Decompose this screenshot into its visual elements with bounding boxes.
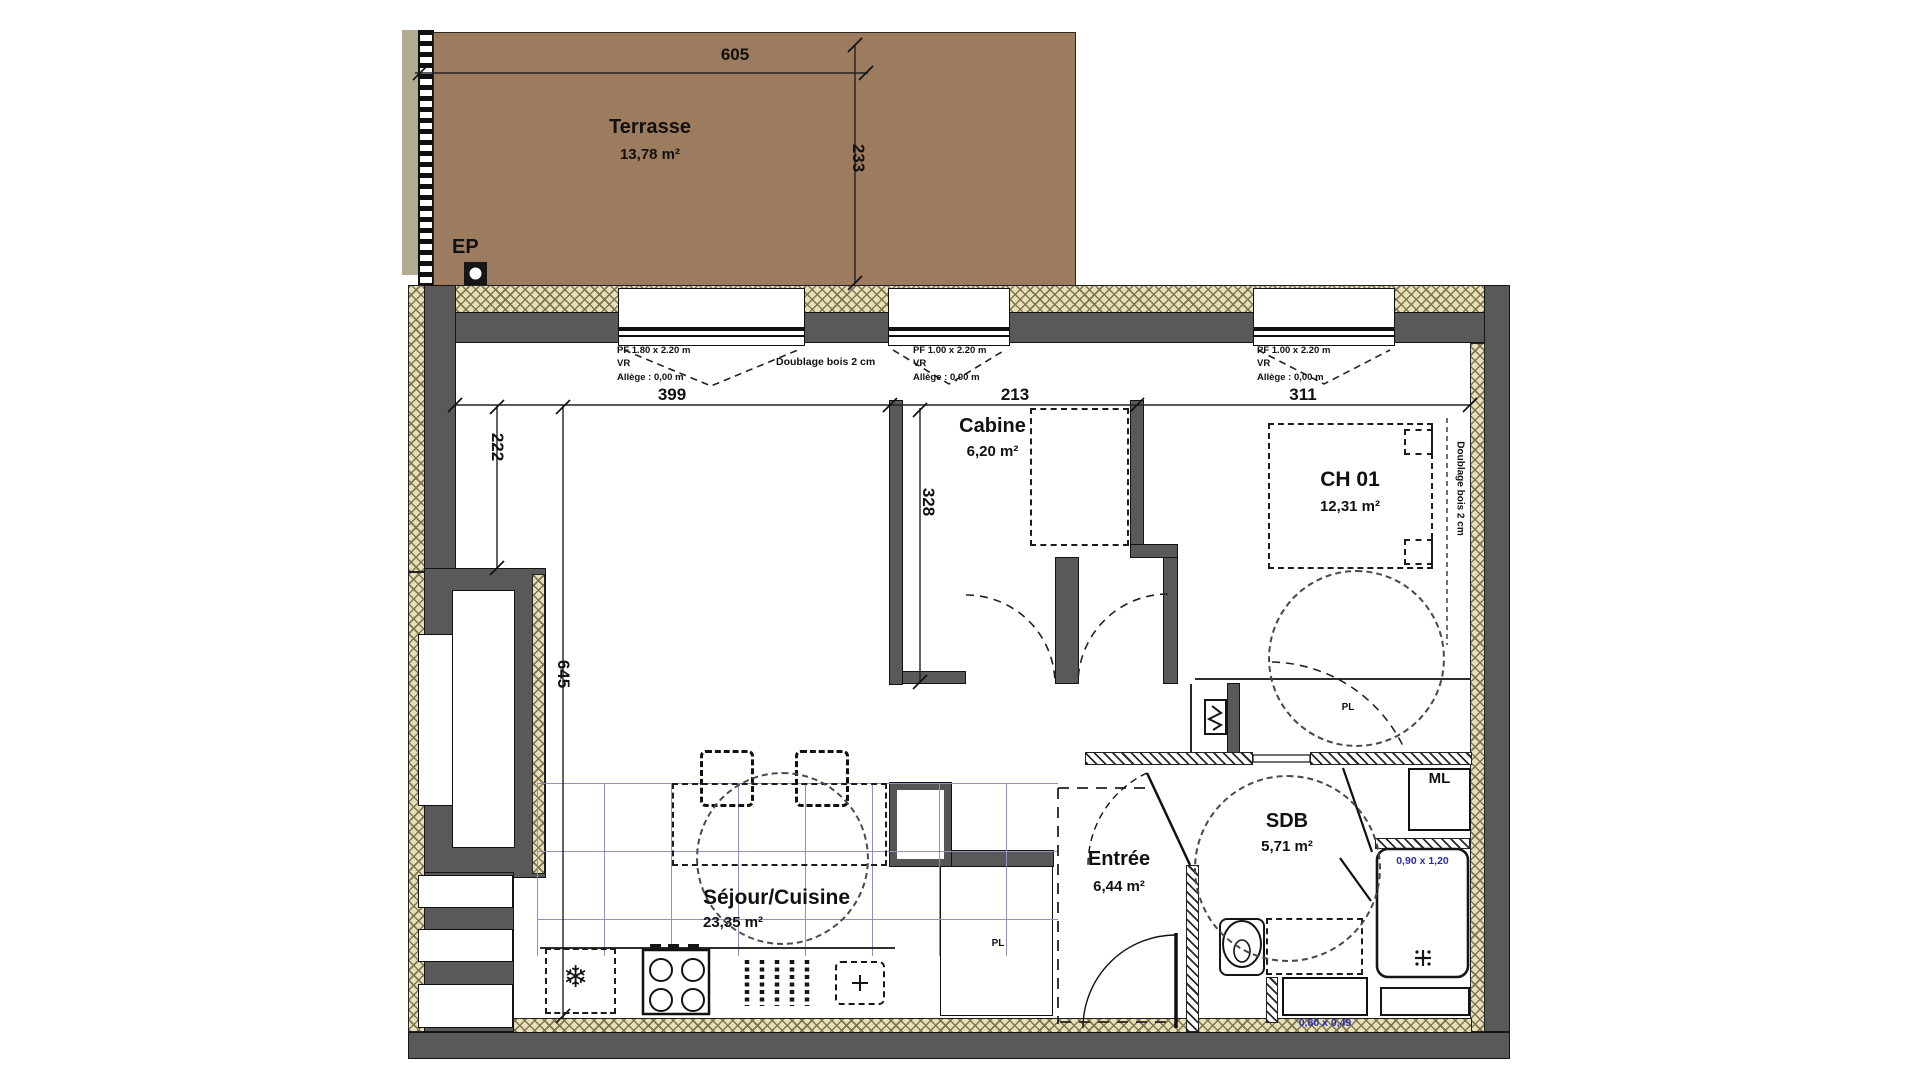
window-2-label: PF 1.00 x 2.20 m VR Allège : 0,00 m [913, 344, 1031, 384]
dim-terrace-height: 233 [848, 128, 868, 188]
ep-label: EP [452, 236, 479, 259]
window-1-sill: Allège : 0,00 m [617, 371, 735, 384]
dim-sejour-width: 399 [642, 385, 702, 405]
plan-linework [0, 0, 1920, 1080]
doublage-right-label: Doublage bois 2 cm [1455, 429, 1466, 549]
dim-interior-height: 645 [553, 644, 573, 704]
sdb-area: 5,71 m² [1237, 838, 1337, 855]
bed-pillow-2 [1404, 539, 1433, 565]
dim-terrace-width: 605 [705, 45, 765, 65]
sdb-name: SDB [1237, 810, 1337, 833]
window-3-sill: Allège : 0,00 m [1257, 371, 1375, 384]
window-3-size: PF 1.00 x 2.20 m [1257, 344, 1375, 357]
entree-name: Entrée [1058, 848, 1180, 871]
window-2-sill: Allège : 0,00 m [913, 371, 1031, 384]
floor-plan: Terrasse 13,78 m² 605 233 EP PF 1.80 x 2… [0, 0, 1920, 1080]
window-2-shutter: VR [913, 357, 1031, 370]
terrace-area: 13,78 m² [560, 146, 740, 163]
dim-cabine-width: 213 [985, 385, 1045, 405]
dim-cabine-depth: 328 [918, 472, 938, 532]
ch01-name: CH 01 [1285, 468, 1415, 492]
cabine-area: 6,20 m² [930, 443, 1055, 460]
ch01-area: 12,31 m² [1285, 498, 1415, 515]
shower-size-label: 0,90 x 1,20 [1377, 855, 1468, 867]
window-3-label: PF 1.00 x 2.20 m VR Allège : 0,00 m [1257, 344, 1375, 384]
closet-hall-label: PL [978, 938, 1018, 949]
turning-circle-sdb [1194, 775, 1381, 962]
window-1-label: PF 1.80 x 2.20 m VR Allège : 0,00 m [617, 344, 735, 384]
closet-ch01-label: PL [1330, 702, 1366, 713]
entree-area: 6,44 m² [1058, 878, 1180, 895]
sejour-name: Séjour/Cuisine [703, 886, 850, 910]
sejour-area: 23,35 m² [703, 914, 763, 931]
window-1-shutter: VR [617, 357, 735, 370]
turning-circle-ch01 [1268, 570, 1445, 747]
cabine-name: Cabine [930, 415, 1055, 438]
fridge-snowflake-icon: ❄ [563, 960, 588, 995]
dim-left-upper: 222 [487, 417, 507, 477]
terrace-name: Terrasse [560, 116, 740, 139]
dim-ch01-width: 311 [1273, 385, 1333, 405]
vanity-size-label: 0,80 x 0,49 [1282, 1017, 1368, 1029]
bed-pillow-1 [1404, 429, 1433, 455]
vanity-cabinet [1282, 977, 1368, 1016]
window-1-size: PF 1.80 x 2.20 m [617, 344, 735, 357]
window-3-shutter: VR [1257, 357, 1375, 370]
window-2-size: PF 1.00 x 2.20 m [913, 344, 1031, 357]
washing-machine-label: ML [1408, 770, 1471, 787]
doublage-top-label: Doublage bois 2 cm [776, 356, 888, 368]
